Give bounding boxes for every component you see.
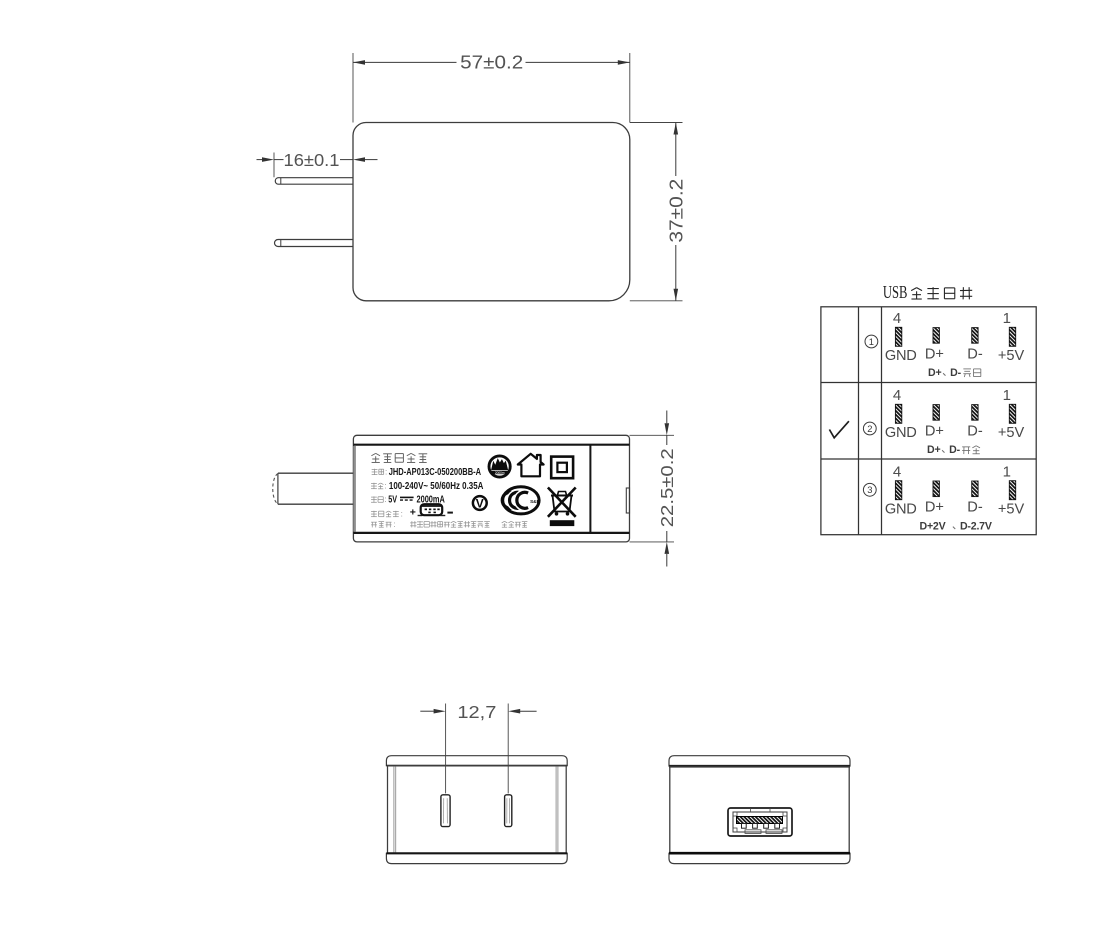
svg-text:12,7: 12,7 <box>457 702 496 722</box>
svg-text:D-2.7V: D-2.7V <box>960 521 992 533</box>
svg-text:1: 1 <box>1003 310 1011 327</box>
svg-text:+: + <box>410 507 416 519</box>
svg-text:D+2V: D+2V <box>920 521 946 533</box>
svg-text:D-: D- <box>967 346 983 362</box>
svg-text:D+: D+ <box>925 346 944 362</box>
svg-text:USB: USB <box>883 282 908 302</box>
svg-text:1: 1 <box>1003 387 1011 404</box>
svg-text:+5V: +5V <box>998 348 1025 364</box>
svg-text:V: V <box>476 497 484 511</box>
svg-text:100-240V~ 50/60Hz 0.35A: 100-240V~ 50/60Hz 0.35A <box>389 481 484 492</box>
svg-text:37±0.2: 37±0.2 <box>666 179 686 243</box>
svg-text:+5V: +5V <box>998 501 1025 517</box>
svg-text:1: 1 <box>869 336 874 347</box>
svg-text:D+: D+ <box>927 444 940 456</box>
svg-text:S&E: S&E <box>530 499 539 504</box>
svg-text:D+: D+ <box>925 500 944 516</box>
svg-text:57±0.2: 57±0.2 <box>460 53 523 73</box>
svg-text::: : <box>401 510 403 519</box>
svg-text::: : <box>384 482 386 491</box>
svg-text::: : <box>394 520 396 529</box>
svg-text:D+: D+ <box>928 367 941 379</box>
svg-text:D-: D- <box>967 423 983 439</box>
svg-text:D-: D- <box>967 500 983 516</box>
svg-text:22.5±0.2: 22.5±0.2 <box>657 448 677 527</box>
svg-text::: : <box>385 468 387 477</box>
svg-text:D-: D- <box>949 444 960 456</box>
svg-text:1: 1 <box>1003 463 1011 480</box>
svg-text:5V: 5V <box>388 495 397 506</box>
svg-text:GND: GND <box>885 425 917 441</box>
svg-text:GND: GND <box>885 348 917 364</box>
svg-text:GND: GND <box>885 501 917 517</box>
svg-text:4: 4 <box>893 463 901 480</box>
svg-text::: : <box>384 495 386 504</box>
svg-text:2: 2 <box>867 423 872 434</box>
svg-text:16±0.1: 16±0.1 <box>284 150 340 170</box>
svg-text:2000m: 2000m <box>495 471 505 475</box>
svg-text:D-: D- <box>950 367 961 379</box>
svg-text:4: 4 <box>893 387 901 404</box>
svg-text:3: 3 <box>867 484 872 495</box>
svg-text:4: 4 <box>893 310 901 327</box>
svg-text:JHD-AP013C-050200BB-A: JHD-AP013C-050200BB-A <box>389 467 482 478</box>
svg-text:+5V: +5V <box>998 425 1025 441</box>
svg-text:D+: D+ <box>925 423 944 439</box>
